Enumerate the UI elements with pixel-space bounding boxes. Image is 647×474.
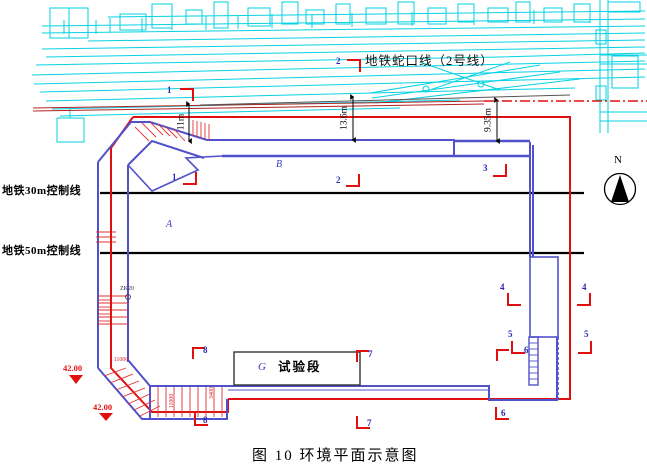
dimension-13-6m: 13.6m	[340, 106, 350, 130]
zone-g-label: G	[258, 362, 266, 373]
control-lines	[100, 193, 584, 253]
section-number-7: 7	[368, 350, 373, 359]
section-number-6: 6	[501, 409, 506, 418]
section-number-8: 8	[203, 346, 208, 355]
elevation-42-upper: 42.00	[63, 364, 82, 373]
section-number-4: 4	[582, 283, 587, 292]
section-bracket-4	[577, 293, 590, 305]
north-label: N	[614, 155, 622, 166]
dimension-11000-vertical: 11000	[169, 394, 175, 409]
figure-caption: 图 10 环境平面示意图	[252, 449, 419, 464]
site-plan-figure: 地铁30m控制线 地铁50m控制线 地铁蛇口线（2号线） A B G 试验段 1…	[0, 0, 647, 474]
section-number-8: 8	[203, 416, 208, 425]
test-section-label: 试验段	[278, 361, 322, 374]
section-number-4: 4	[500, 283, 505, 292]
section-bracket-2	[346, 174, 359, 186]
control-line-30m-label: 地铁30m控制线	[2, 186, 81, 197]
section-number-5: 5	[508, 330, 513, 339]
section-number-3: 3	[483, 164, 488, 173]
section-bracket-4	[508, 293, 521, 305]
zone-b-label: B	[276, 160, 282, 170]
dimension-9-35m: 9.35m	[484, 108, 494, 132]
section-bracket-2	[347, 60, 360, 72]
section-number-1: 1	[167, 86, 172, 95]
right-wall-hatching	[529, 343, 538, 379]
section-number-1: 1	[172, 173, 177, 182]
north-compass-icon	[605, 174, 636, 205]
dimension-3400: 3400	[209, 387, 215, 399]
section-bracket-5	[578, 341, 591, 353]
section-bracket-1	[180, 89, 193, 101]
dimension-11m: 11m	[177, 114, 187, 131]
metro-line-label: 地铁蛇口线（2号线）	[365, 55, 494, 68]
section-bracket-6	[497, 350, 509, 361]
borehole-label: ZK20	[120, 286, 134, 292]
section-number-6: 6	[524, 346, 529, 355]
section-number-2: 2	[336, 57, 341, 66]
slope-hatching	[96, 120, 222, 417]
section-bracket-3	[493, 164, 506, 176]
elevation-markers	[69, 375, 113, 421]
section-number-2: 2	[336, 176, 341, 185]
section-number-7: 7	[367, 419, 372, 428]
zone-a-label: A	[166, 220, 172, 230]
dimension-11000-horizontal: 11000	[114, 357, 129, 363]
control-line-50m-label: 地铁50m控制线	[2, 246, 81, 257]
section-number-5: 5	[584, 330, 589, 339]
elevation-42-lower: 42.00	[93, 403, 112, 412]
